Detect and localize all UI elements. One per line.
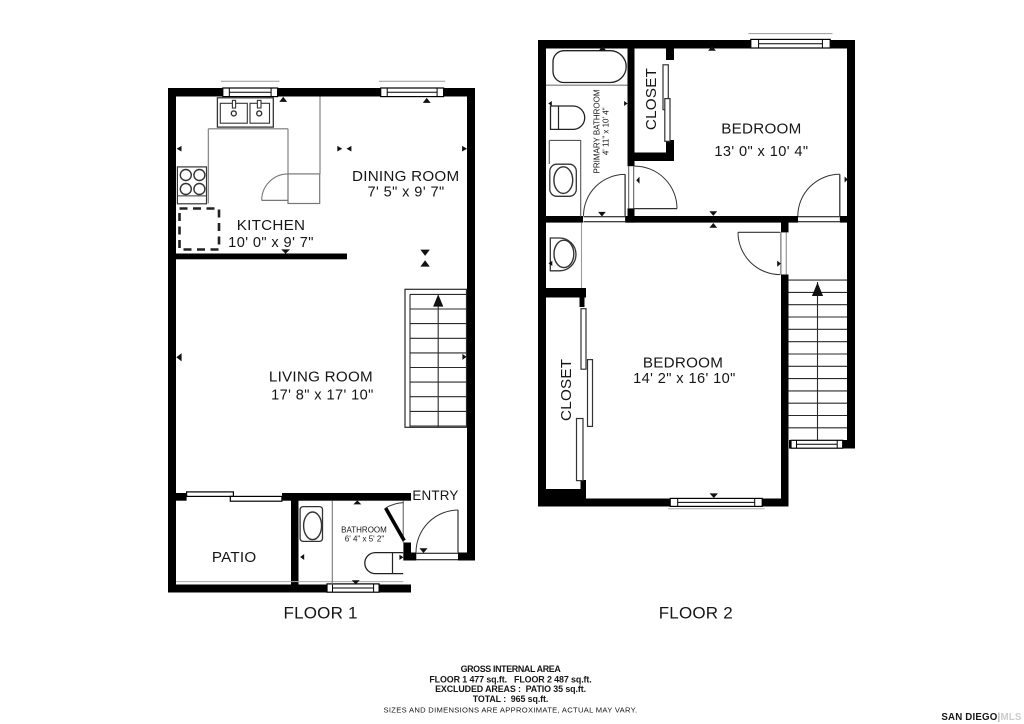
svg-text:KITCHEN: KITCHEN	[237, 217, 305, 234]
svg-text:ENTRY: ENTRY	[412, 488, 458, 503]
svg-text:LIVING ROOM: LIVING ROOM	[269, 369, 373, 386]
svg-text:EXCLUDED AREAS : PATIO 35 sq.: EXCLUDED AREAS : PATIO 35 sq.ft.	[435, 684, 586, 694]
svg-text:17' 8" x 17' 10": 17' 8" x 17' 10"	[271, 388, 374, 404]
svg-text:BEDROOM: BEDROOM	[721, 121, 801, 138]
svg-text:4' 11" x 10' 4": 4' 11" x 10' 4"	[601, 107, 610, 155]
svg-text:SIZES AND DIMENSIONS ARE APPRO: SIZES AND DIMENSIONS ARE APPROXIMATE, AC…	[384, 705, 638, 714]
svg-text:CLOSET: CLOSET	[643, 68, 660, 130]
svg-text:FLOOR 1 477 sq.ft. FLOOR 2 4: FLOOR 1 477 sq.ft. FLOOR 2 487 sq.ft.	[429, 674, 591, 684]
svg-text:CLOSET: CLOSET	[558, 359, 575, 421]
svg-text:BATHROOM: BATHROOM	[341, 525, 387, 534]
svg-text:13' 0" x 10' 4": 13' 0" x 10' 4"	[714, 144, 808, 160]
svg-text:TOTAL : 965 sq.ft.: TOTAL : 965 sq.ft.	[473, 694, 549, 704]
svg-text:7' 5" x 9' 7": 7' 5" x 9' 7"	[367, 185, 444, 201]
svg-text:14' 2" x 16' 10": 14' 2" x 16' 10"	[633, 371, 736, 387]
svg-text:FLOOR 1: FLOOR 1	[284, 604, 358, 623]
svg-text:6' 4" x 5' 2": 6' 4" x 5' 2"	[345, 535, 385, 544]
svg-text:PRIMARY BATHROOM: PRIMARY BATHROOM	[593, 89, 602, 173]
svg-text:DINING ROOM: DINING ROOM	[352, 168, 459, 185]
svg-text:PATIO: PATIO	[212, 549, 257, 566]
svg-text:GROSS INTERNAL AREA: GROSS INTERNAL AREA	[461, 664, 562, 674]
svg-text:10' 0" x 9' 7": 10' 0" x 9' 7"	[228, 235, 314, 251]
svg-text:SAN DIEGO|MLS: SAN DIEGO|MLS	[941, 712, 1021, 723]
svg-text:BEDROOM: BEDROOM	[643, 355, 723, 372]
svg-text:FLOOR 2: FLOOR 2	[659, 604, 733, 623]
